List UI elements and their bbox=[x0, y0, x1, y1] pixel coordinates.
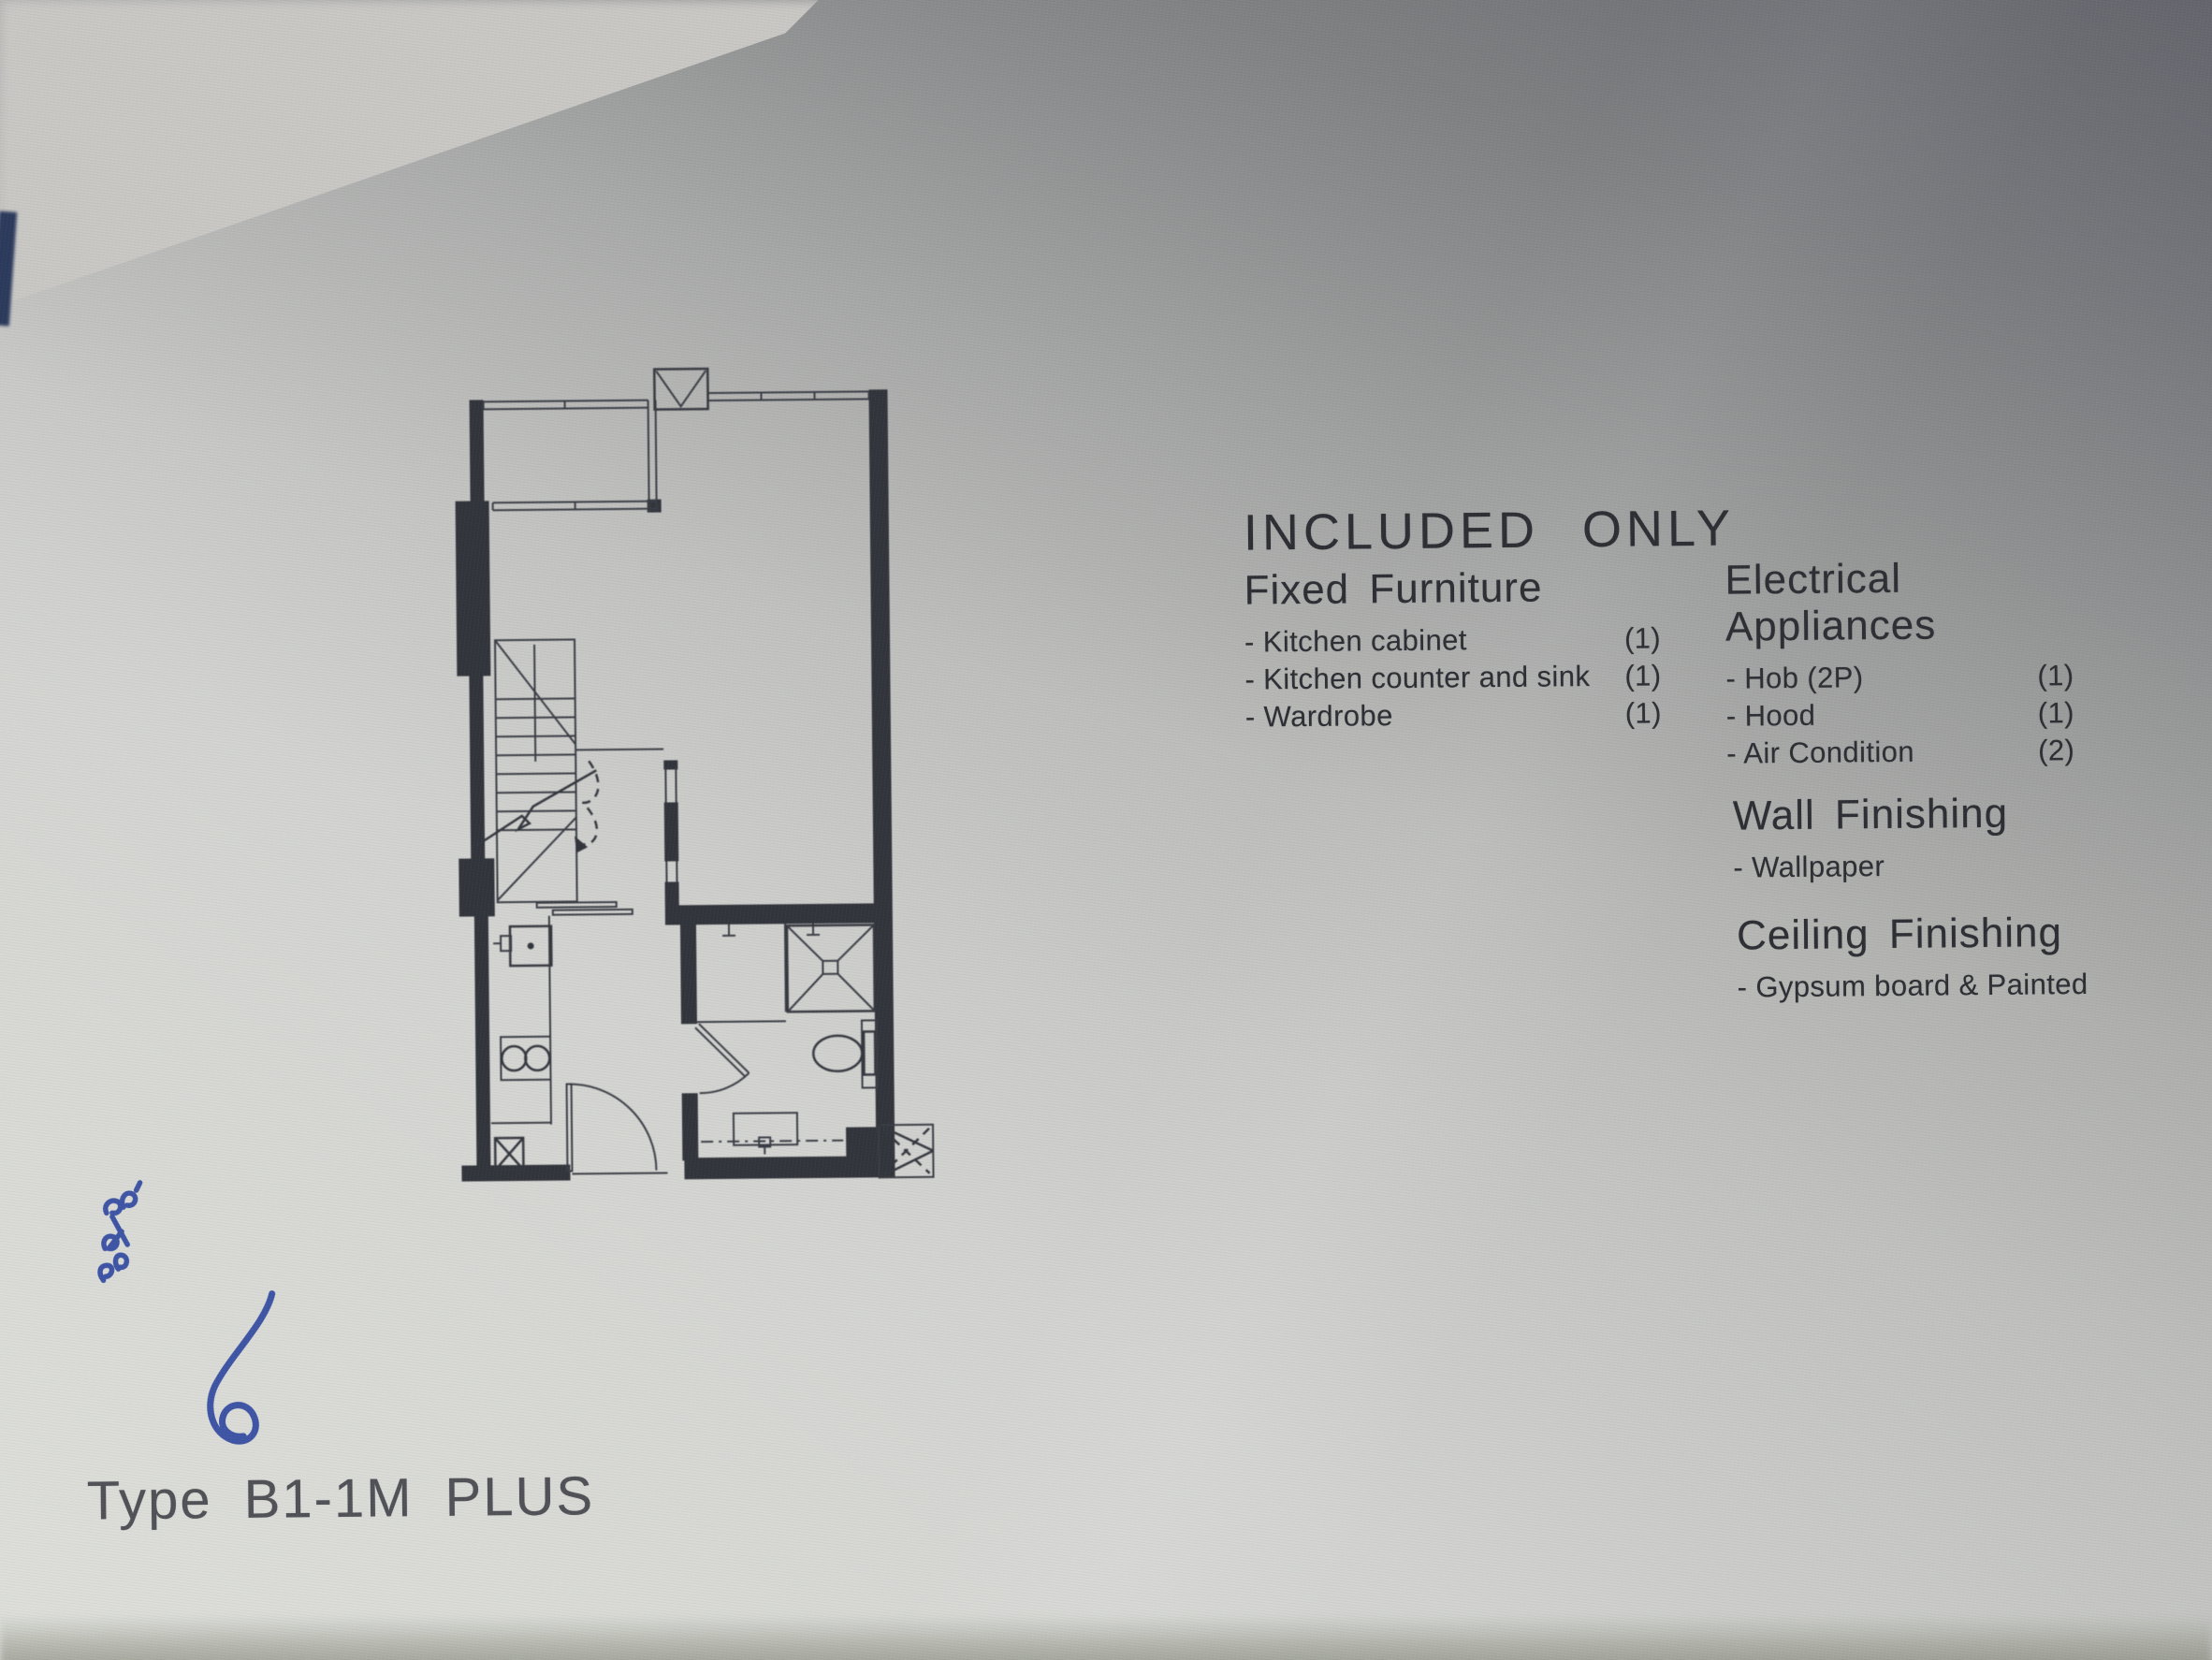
spec-qty: (1) bbox=[2038, 696, 2074, 730]
spec-label: - Hood bbox=[1726, 699, 1816, 734]
main-window bbox=[707, 391, 868, 400]
spec-row: - Hood (1) bbox=[1726, 696, 2074, 737]
photographed-spec-sheet: INCLUDED ONLY Fixed Furniture - Kitchen … bbox=[0, 0, 2212, 1660]
page-title: INCLUDED ONLY bbox=[1244, 500, 1736, 562]
kitchen-sink bbox=[493, 926, 551, 967]
spec-label: - Wallpaper bbox=[1733, 850, 1885, 885]
spec-qty: (1) bbox=[1624, 659, 1661, 692]
spec-row: - Wardrobe (1) bbox=[1245, 696, 1662, 737]
ac-shaft-box bbox=[654, 369, 707, 410]
fixed-furniture-section: Fixed Furniture - Kitchen cabinet (1) - … bbox=[1244, 563, 1662, 737]
ceiling-finishing-heading: Ceiling Finishing bbox=[1737, 910, 2130, 960]
spec-row: - Hob (2P) (1) bbox=[1725, 659, 2074, 700]
spec-row: - Kitchen counter and sink (1) bbox=[1244, 659, 1661, 700]
floor-plan bbox=[443, 365, 939, 1195]
spec-qty: (2) bbox=[2038, 734, 2074, 767]
spec-label: - Air Condition bbox=[1726, 735, 1914, 771]
hob-2-burners bbox=[501, 1037, 550, 1081]
electrical-appliances-section: Electrical Appliances - Hob (2P) (1) - H… bbox=[1724, 554, 2074, 775]
spec-qty: (1) bbox=[2037, 659, 2074, 692]
ceiling-finishing-section: Ceiling Finishing - Gypsum board & Paint… bbox=[1737, 910, 2131, 1009]
walls bbox=[454, 389, 895, 1181]
stair-break-line bbox=[474, 770, 597, 846]
bathroom-door bbox=[695, 1024, 749, 1094]
middle-partition bbox=[575, 749, 677, 882]
balcony-windows bbox=[484, 400, 657, 515]
spec-row: - Gypsum board & Painted bbox=[1737, 968, 2130, 1009]
spec-label: - Kitchen counter and sink bbox=[1244, 660, 1590, 697]
spec-qty: (1) bbox=[1625, 696, 1662, 730]
handwritten-note bbox=[89, 1175, 157, 1287]
shaft-square bbox=[495, 1138, 523, 1170]
floor-plan-svg bbox=[443, 365, 939, 1195]
entry-door bbox=[567, 1084, 668, 1174]
spec-label: - Gypsum board & Painted bbox=[1737, 968, 2088, 1005]
spec-row: - Kitchen cabinet (1) bbox=[1244, 621, 1661, 663]
bathroom bbox=[694, 923, 878, 1155]
wall-finishing-section: Wall Finishing - Wallpaper bbox=[1733, 790, 2082, 889]
unit-type-label: Type B1-1M PLUS bbox=[87, 1464, 595, 1532]
signature-mark bbox=[190, 1288, 297, 1452]
spec-qty: (1) bbox=[1624, 621, 1661, 655]
fixed-furniture-heading: Fixed Furniture bbox=[1244, 563, 1660, 614]
electrical-appliances-heading: Electrical Appliances bbox=[1724, 554, 2074, 651]
spec-label: - Hob (2P) bbox=[1725, 661, 1863, 695]
spec-label: - Kitchen cabinet bbox=[1244, 623, 1467, 659]
kitchen bbox=[489, 902, 635, 1170]
spec-label: - Wardrobe bbox=[1245, 699, 1393, 735]
printed-sheet: INCLUDED ONLY Fixed Furniture - Kitchen … bbox=[0, 0, 2212, 1660]
vanity bbox=[734, 1113, 797, 1155]
toilet bbox=[813, 1020, 878, 1088]
spec-row: - Air Condition (2) bbox=[1726, 734, 2074, 775]
spec-row: - Wallpaper bbox=[1733, 848, 2081, 889]
shower bbox=[787, 925, 875, 1012]
wall-finishing-heading: Wall Finishing bbox=[1733, 790, 2081, 840]
